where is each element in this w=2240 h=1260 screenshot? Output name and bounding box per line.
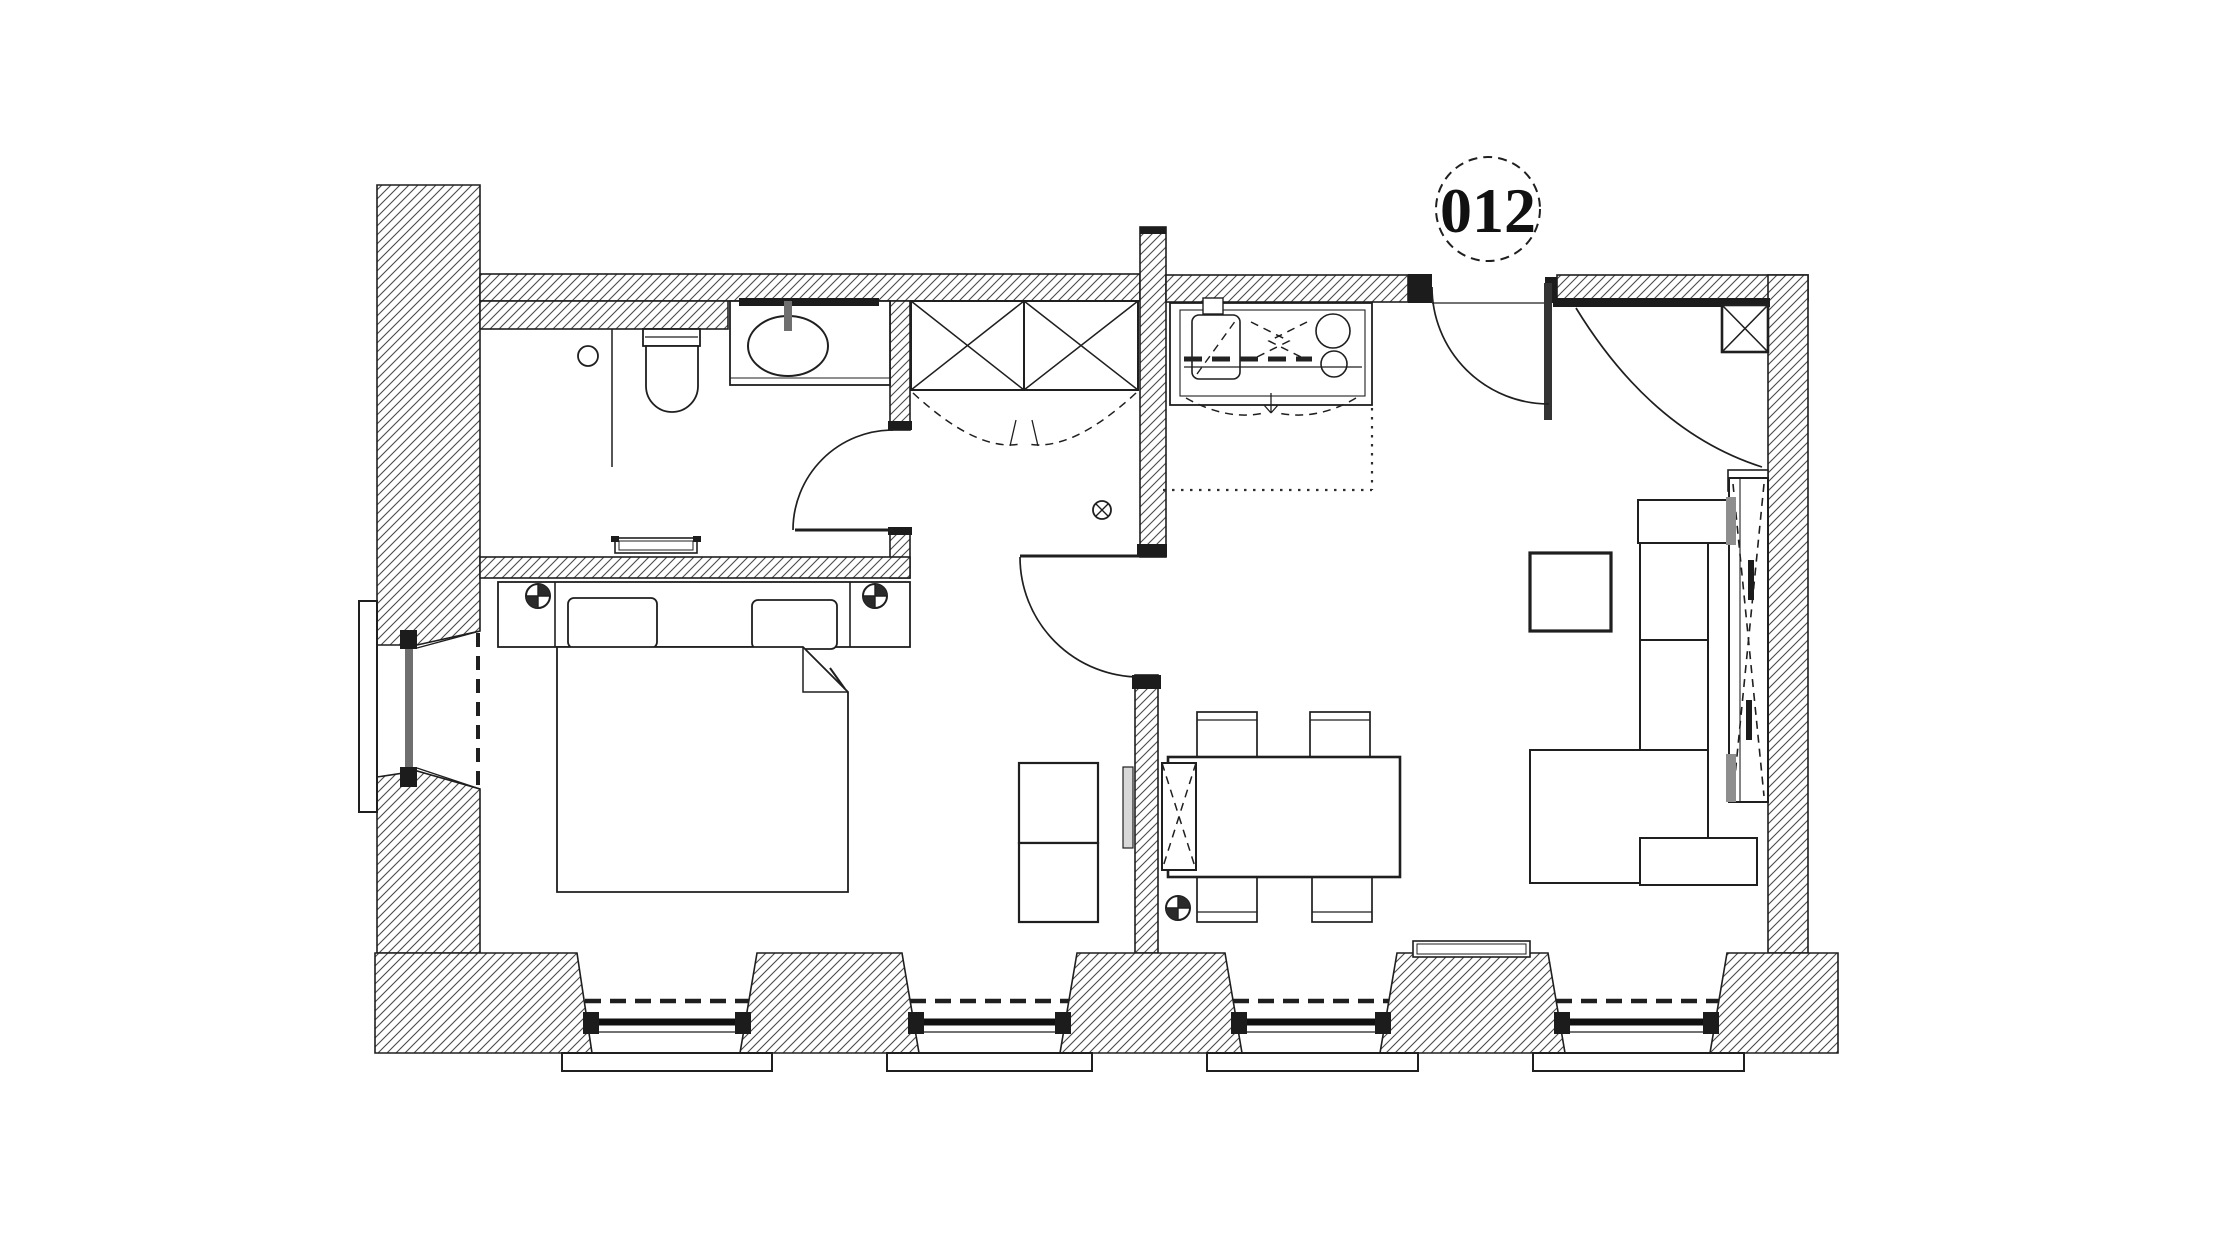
sofa-seat — [1640, 543, 1708, 640]
toilet-bowl — [646, 346, 698, 412]
left-wall-lower — [377, 771, 480, 953]
bathroom-furring-wall — [480, 301, 728, 329]
vanity-counter — [730, 301, 890, 385]
door-swing-arc — [1020, 557, 1140, 677]
entry-hall — [911, 301, 1138, 519]
sofa-seat — [1640, 640, 1708, 750]
bedroom-dining-wall — [1135, 675, 1158, 953]
stub-wall-top-cap — [1140, 227, 1166, 234]
bottom-wall-d — [1380, 953, 1565, 1053]
kitchen-vent-box — [1203, 298, 1223, 314]
chair — [1312, 877, 1372, 922]
bottom-wall-a — [375, 953, 592, 1053]
bathroom-door — [793, 430, 893, 530]
bottom-wall-b — [740, 953, 919, 1053]
sofa-seat-right — [1640, 838, 1757, 885]
door-swing-arc — [793, 430, 893, 530]
unit-number: 012 — [1440, 175, 1536, 246]
window-end-cap — [1055, 1012, 1071, 1034]
dining-table — [1168, 757, 1400, 877]
bottom-wall-e — [1710, 953, 1838, 1053]
electrical-outlet-symbol — [1093, 501, 1111, 519]
wardrobe-door-swing — [913, 393, 1020, 445]
double-bed — [498, 582, 910, 892]
chair-seat — [1197, 712, 1257, 758]
bathroom-radiator — [611, 536, 701, 553]
window-end-cap — [583, 1012, 599, 1034]
dresser-top — [1019, 763, 1098, 843]
bottom-wall-c — [1060, 953, 1242, 1053]
door-swing-arc — [1432, 287, 1549, 404]
bed-headboard — [498, 582, 910, 647]
mattress — [557, 647, 848, 892]
hall-kitchen-stub-wall — [1140, 227, 1166, 557]
wardrobe-door-tick — [1010, 420, 1016, 446]
bathroom — [578, 298, 890, 553]
left-wall-upper — [377, 185, 480, 645]
unit-number-bubble: 012 — [1436, 157, 1540, 261]
living-room — [1530, 305, 1768, 885]
dining-area — [1162, 712, 1530, 957]
chair — [1310, 712, 1370, 758]
radiator-bracket — [611, 536, 619, 542]
latch-block — [1746, 700, 1752, 740]
radiator-bracket — [693, 536, 701, 542]
bedroom — [498, 582, 1133, 922]
floor-plan-drawing: 012 — [0, 0, 2240, 1260]
sink-vanity — [730, 298, 890, 385]
window-end-cap — [735, 1012, 751, 1034]
bedroom-door — [1020, 556, 1140, 677]
hinge-block — [1726, 497, 1736, 545]
window-end-cap — [908, 1012, 924, 1034]
wall-mirror — [1123, 767, 1133, 848]
faucet — [784, 301, 792, 331]
survey-marker-icon — [863, 584, 887, 608]
window-end-cap — [1231, 1012, 1247, 1034]
window-end-cap — [400, 630, 417, 649]
right-wall — [1768, 275, 1808, 953]
window-sill — [359, 601, 377, 812]
window-end-cap — [400, 767, 417, 787]
chair — [1197, 712, 1257, 758]
entry-left-jamb — [1408, 274, 1432, 303]
window-end-cap — [1703, 1012, 1719, 1034]
window-end-cap — [1554, 1012, 1570, 1034]
top-wall-main — [480, 274, 1140, 301]
bathroom-right-wall-upper — [890, 301, 910, 430]
mirror-above-sink — [739, 298, 879, 306]
floor-plan-page: 012 — [0, 0, 2240, 1260]
bathroom-bottom-wall — [480, 557, 910, 578]
toilet — [643, 329, 700, 412]
chair-seat — [1197, 877, 1257, 922]
wall-cabinet-x — [1162, 763, 1196, 870]
stub-wall-bottom-cap — [1137, 544, 1167, 557]
floor-drain — [578, 346, 598, 366]
wardrobe-door-swing — [1028, 393, 1136, 445]
pillow — [752, 600, 837, 649]
shaft-box — [1722, 305, 1768, 352]
window-bedroom — [562, 1001, 772, 1071]
window-sill — [1533, 1053, 1744, 1071]
coffee-table — [1530, 553, 1611, 631]
chair-seat — [1312, 877, 1372, 922]
chair — [1197, 877, 1257, 922]
dresser — [1019, 763, 1098, 922]
chair-seat — [1310, 712, 1370, 758]
pillow — [568, 598, 657, 648]
wardrobe — [911, 301, 1138, 446]
window-end-cap — [1375, 1012, 1391, 1034]
radiator-inner — [619, 541, 693, 550]
survey-marker-icon — [526, 584, 550, 608]
hinge-block — [1726, 754, 1736, 802]
window-sill — [887, 1053, 1092, 1071]
wardrobe-door-tick — [1032, 420, 1038, 446]
tall-window-unit — [1726, 478, 1768, 802]
radiator-inner — [1417, 944, 1526, 954]
dresser-bottom — [1019, 843, 1098, 922]
window-sill — [562, 1053, 772, 1071]
door-leaf — [1544, 283, 1552, 420]
kitchen — [1163, 298, 1372, 490]
window-bedroom-2 — [887, 1001, 1092, 1071]
latch-block — [1748, 560, 1754, 600]
bath-door-top-jamb — [888, 421, 912, 430]
window-sill — [1207, 1053, 1418, 1071]
survey-marker-icon — [1166, 896, 1190, 920]
dining-radiator — [1413, 941, 1530, 957]
